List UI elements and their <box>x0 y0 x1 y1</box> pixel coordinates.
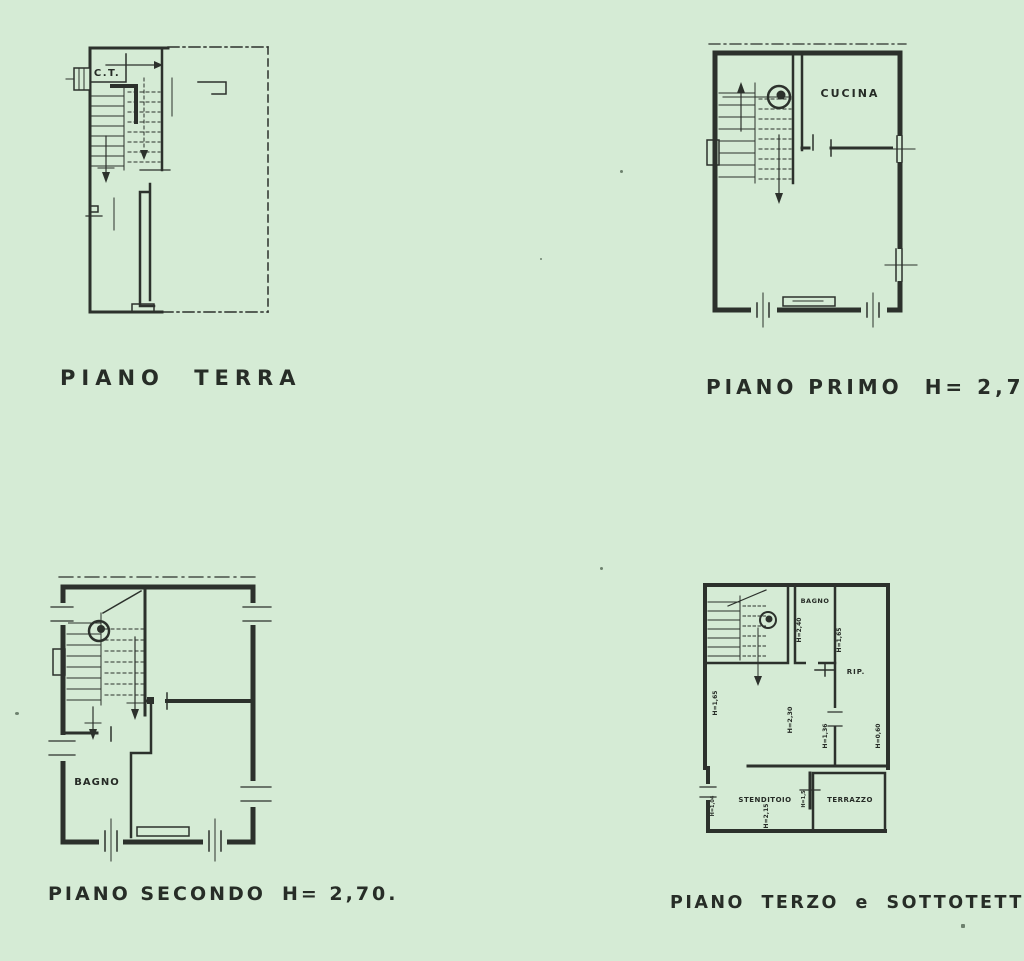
room-label-bagno-terzo: BAGNO <box>801 597 830 605</box>
piano-terzo-walls <box>700 585 888 831</box>
piano-secondo-walls <box>59 577 257 842</box>
room-label-bagno-secondo: BAGNO <box>74 777 119 788</box>
room-label-rip: RIP. <box>847 668 866 676</box>
piano-terra-drawing: C.T. <box>50 20 290 335</box>
caption-piano-secondo-text: PIANO SECONDO <box>48 883 266 905</box>
scan-speck <box>15 712 19 715</box>
height-label-mid-wall: H=1,36 <box>822 724 829 749</box>
caption-piano-terra: PIANO TERRA <box>60 366 301 390</box>
height-label-left-wall: H=1,65 <box>712 691 719 716</box>
piano-terzo-stairs <box>708 590 776 686</box>
piano-primo-drawing: CUCINA <box>695 35 925 335</box>
piano-terra-fixtures <box>114 78 226 230</box>
room-label-cucina: CUCINA <box>821 87 880 100</box>
scanned-floorplan-page: C.T. PIANO TERRA <box>0 0 1024 961</box>
caption-piano-primo: PIANO PRIMOH= 2,75 <box>706 375 1024 399</box>
caption-piano-secondo-height: H= 2,70. <box>282 883 399 905</box>
height-label-bagno: H=2,40 <box>796 618 803 643</box>
room-label-terrazzo: TERRAZZO <box>827 796 873 804</box>
caption-piano-primo-text: PIANO PRIMO <box>706 375 903 399</box>
caption-piano-terzo-text: PIANO TERZO e SOTTOTETTO <box>670 893 1024 913</box>
height-label-bagno-wall: H=1,65 <box>836 628 843 653</box>
caption-piano-primo-height: H= 2,75 <box>925 375 1024 399</box>
caption-piano-secondo: PIANO SECONDOH= 2,70. <box>48 883 399 905</box>
piano-secondo-drawing: BAGNO <box>45 565 275 865</box>
room-label-stenditoio: STENDITOIO <box>738 796 791 804</box>
caption-piano-terra-text: PIANO TERRA <box>60 366 301 390</box>
scan-speck <box>540 258 542 260</box>
height-label-right-wall: H=0,60 <box>875 724 882 749</box>
caption-terzo-period <box>961 924 965 928</box>
piano-terra-walls <box>66 47 268 312</box>
scan-speck <box>620 170 623 173</box>
height-label-center: H=2,30 <box>786 706 794 733</box>
piano-terzo-labels: BAGNO H=2,40 H=1,65 RIP. H=1,65 H=2,30 H… <box>710 597 882 828</box>
height-label-entry: H=1,04 <box>710 795 716 816</box>
piano-terra-stairs <box>90 61 170 183</box>
piano-primo-windows <box>751 136 917 327</box>
piano-terzo-drawing: BAGNO H=2,40 H=1,65 RIP. H=1,65 H=2,30 H… <box>688 568 903 853</box>
height-label-stenditoio: H=2,15 <box>763 804 770 829</box>
scan-speck <box>600 567 603 570</box>
height-label-terrazzo-door: H=1,5 <box>801 790 807 808</box>
room-label-ct: C.T. <box>94 68 120 79</box>
caption-piano-terzo: PIANO TERZO e SOTTOTETTO <box>670 893 1024 913</box>
piano-primo-stairs <box>707 82 791 204</box>
